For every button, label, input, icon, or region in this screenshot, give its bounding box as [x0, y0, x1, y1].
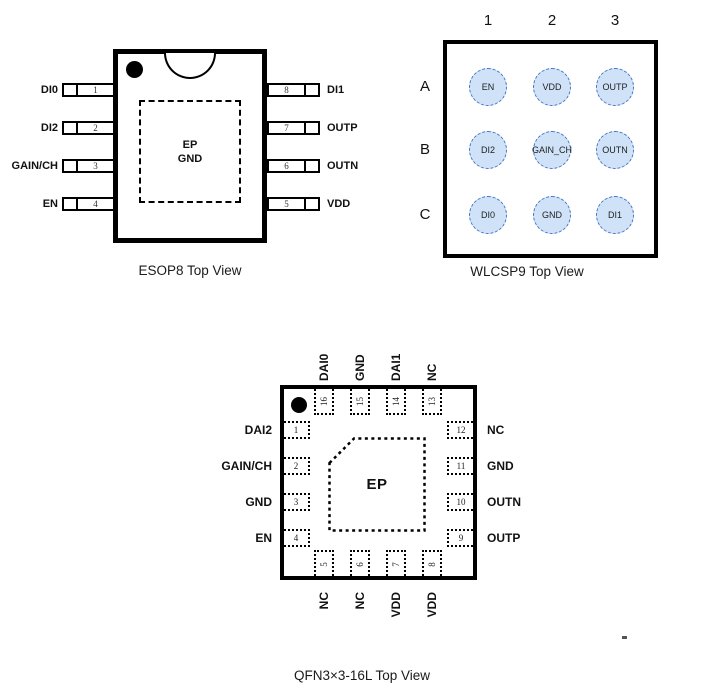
- pin-number: 7: [392, 562, 401, 567]
- qfn16-pin-10: 10: [447, 493, 473, 511]
- pin-number: 4: [294, 534, 299, 543]
- esop8-pin-label-di2: DI2: [0, 121, 58, 135]
- pin-cap: [64, 123, 78, 133]
- qfn16-pin-5: 5: [314, 550, 334, 576]
- qfn16-label-gnd-l: GND: [150, 493, 272, 511]
- pin-number: 10: [457, 498, 466, 507]
- esop8-pin-3: 3: [62, 159, 115, 173]
- esop8-pin-label-gainch: GAIN/CH: [0, 159, 58, 173]
- wlcsp9-col-header-1: 1: [468, 12, 508, 29]
- esop8-pin-label-di1: DI1: [327, 83, 344, 97]
- qfn16-pin-15: 15: [350, 389, 370, 415]
- pin-number: 3: [294, 498, 299, 507]
- wlcsp9-ball-b3: OUTN: [596, 131, 634, 169]
- pin-number: 1: [294, 426, 299, 435]
- pin-cap: [304, 123, 318, 133]
- esop8-pin-8: 8: [267, 83, 320, 97]
- wlcsp9-ball-a2: VDD: [533, 68, 571, 106]
- pin-number: 6: [356, 562, 365, 567]
- wlcsp9-caption: WLCSP9 Top View: [417, 264, 637, 279]
- qfn16-label-nc-b1: NC: [316, 592, 332, 662]
- qfn16-pin-8: 8: [422, 550, 442, 576]
- esop8-pin-2: 2: [62, 121, 115, 135]
- pin-number: 2: [78, 123, 113, 133]
- qfn16-label-nc-r: NC: [487, 421, 504, 439]
- qfn16-label-vdd-b2: VDD: [424, 592, 440, 662]
- qfn16-pin-1: 1: [284, 421, 310, 439]
- pin-number: 5: [269, 199, 304, 209]
- qfn16-pin-4: 4: [284, 529, 310, 547]
- esop8-pin1-marker-dot: [126, 61, 143, 78]
- pin-cap: [304, 199, 318, 209]
- qfn16-pin-2: 2: [284, 457, 310, 475]
- esop8-pin-1: 1: [62, 83, 115, 97]
- esop8-ep-text: EP: [183, 138, 198, 152]
- esop8-pin-label-vdd: VDD: [327, 197, 350, 211]
- esop8-ep-gnd-text: GND: [178, 152, 202, 166]
- esop8-pin-6: 6: [267, 159, 320, 173]
- wlcsp9-row-header-b: B: [413, 141, 437, 159]
- qfn16-pin-12: 12: [447, 421, 473, 439]
- pin-cap: [64, 199, 78, 209]
- esop8-pin-label-di0: DI0: [0, 83, 58, 97]
- wlcsp9-col-header-2: 2: [532, 12, 572, 29]
- qfn16-label-dai2: DAI2: [150, 421, 272, 439]
- wlcsp9-ball-c3: DI1: [596, 196, 634, 234]
- qfn16-pin-9: 9: [447, 529, 473, 547]
- pin-number: 8: [269, 85, 304, 95]
- pin-number: 8: [428, 562, 437, 567]
- pinout-diagram-page: 1 2 3 4 8 7 6 5 DI0 DI2 GAIN/CH EN DI1 O…: [0, 0, 723, 694]
- qfn16-label-vdd-b1: VDD: [388, 592, 404, 662]
- pin-number: 2: [294, 462, 299, 471]
- wlcsp9-ball-b1: DI2: [469, 131, 507, 169]
- qfn16-label-en: EN: [150, 529, 272, 547]
- wlcsp9-ball-c2: GND: [533, 196, 571, 234]
- qfn16-label-gnd-t: GND: [352, 311, 368, 381]
- qfn16-label-outn: OUTN: [487, 493, 521, 511]
- qfn16-label-dai1: DAI1: [388, 311, 404, 381]
- qfn16-label-dai0: DAI0: [316, 311, 332, 381]
- pin-cap: [304, 85, 318, 95]
- qfn16-ep-label: EP: [328, 437, 426, 532]
- pin-number: 7: [269, 123, 304, 133]
- pin-number: 5: [320, 562, 329, 567]
- wlcsp9-row-header-c: C: [413, 206, 437, 224]
- qfn16-pin-16: 16: [314, 389, 334, 415]
- qfn16-label-gnd-r: GND: [487, 457, 514, 475]
- esop8-caption: ESOP8 Top View: [80, 263, 300, 278]
- esop8-pin-label-outp: OUTP: [327, 121, 358, 135]
- wlcsp9-ball-a1: EN: [469, 68, 507, 106]
- pin-number: 3: [78, 161, 113, 171]
- wlcsp9-ball-a3: OUTP: [596, 68, 634, 106]
- qfn16-label-nc-b2: NC: [352, 592, 368, 662]
- pin-number: 4: [78, 199, 113, 209]
- esop8-pin-4: 4: [62, 197, 115, 211]
- pin-number: 11: [457, 462, 466, 471]
- esop8-pin-7: 7: [267, 121, 320, 135]
- qfn16-pin-6: 6: [350, 550, 370, 576]
- pin-cap: [304, 161, 318, 171]
- qfn16-pin-3: 3: [284, 493, 310, 511]
- wlcsp9-ball-c1: DI0: [469, 196, 507, 234]
- pin-number: 9: [459, 534, 464, 543]
- pin-cap: [64, 161, 78, 171]
- pin-number: 15: [356, 397, 365, 406]
- pin-number: 1: [78, 85, 113, 95]
- esop8-exposed-pad: EP GND: [139, 100, 241, 203]
- pin-number: 16: [320, 397, 329, 406]
- qfn16-pin-13: 13: [422, 389, 442, 415]
- esop8-pin-label-en: EN: [0, 197, 58, 211]
- qfn16-label-nc-t: NC: [424, 311, 440, 381]
- pin-number: 13: [428, 397, 437, 406]
- qfn16-label-gainch: GAIN/CH: [150, 457, 272, 475]
- wlcsp9-col-header-3: 3: [595, 12, 635, 29]
- esop8-pin-label-outn: OUTN: [327, 159, 358, 173]
- pin-number: 14: [392, 397, 401, 406]
- wlcsp9-ball-b2: GAIN_CH: [533, 131, 571, 169]
- qfn16-pin-14: 14: [386, 389, 406, 415]
- pin-number: 12: [457, 426, 466, 435]
- stray-mark: [622, 636, 627, 639]
- qfn16-pin-11: 11: [447, 457, 473, 475]
- qfn16-pin-7: 7: [386, 550, 406, 576]
- qfn16-label-outp: OUTP: [487, 529, 520, 547]
- esop8-pin-5: 5: [267, 197, 320, 211]
- qfn16-caption: QFN3×3-16L Top View: [252, 668, 472, 683]
- pin-cap: [64, 85, 78, 95]
- wlcsp9-row-header-a: A: [413, 78, 437, 96]
- pin-number: 6: [269, 161, 304, 171]
- qfn16-pin1-marker-dot: [291, 397, 307, 413]
